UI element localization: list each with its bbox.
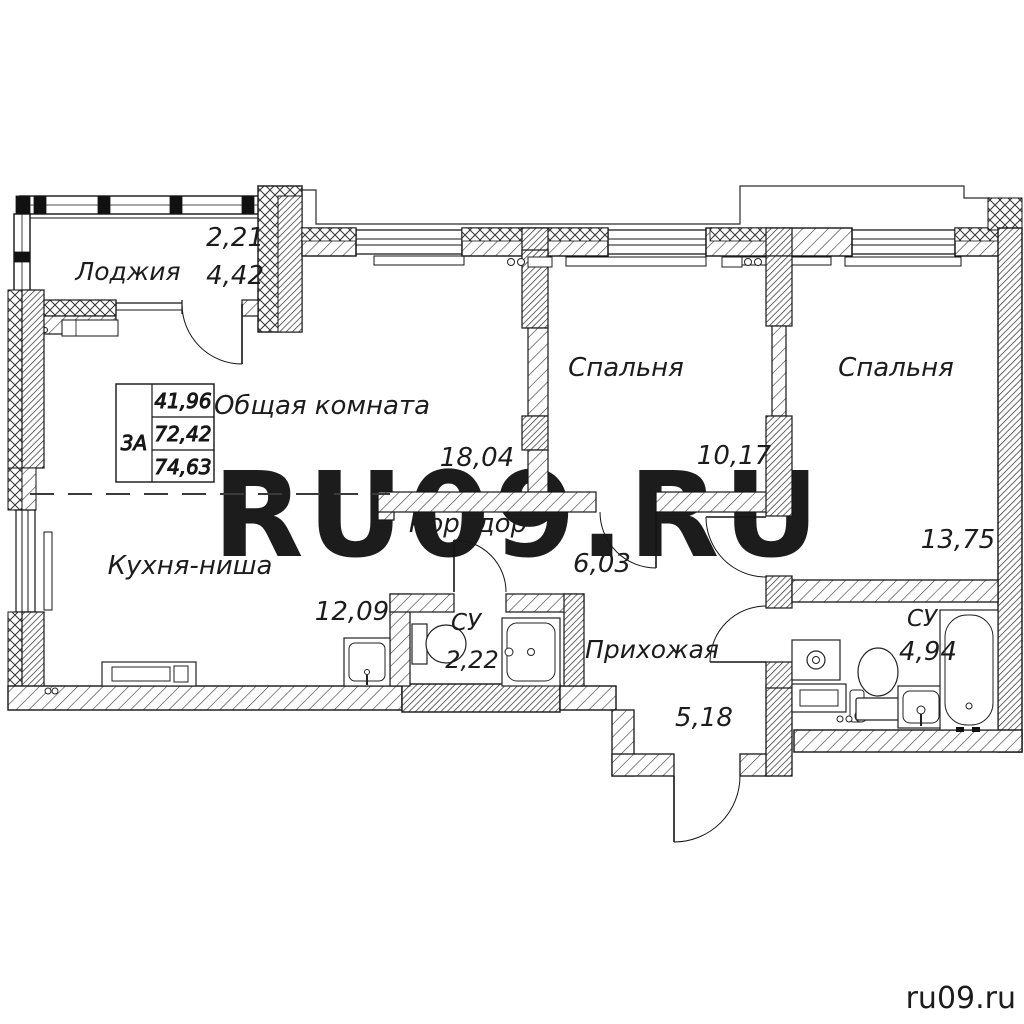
wall-bedroom2-west bbox=[766, 256, 792, 326]
room-area-bedroom2: 13,75 bbox=[921, 525, 995, 555]
wall-bath-small bbox=[390, 594, 454, 612]
kitchen-counter bbox=[174, 666, 188, 682]
glazing-post bbox=[98, 196, 110, 214]
radiator bbox=[44, 532, 52, 610]
unit-label: 3А bbox=[121, 431, 147, 455]
outlet-icon bbox=[745, 259, 752, 266]
room-label-corridor: Коридор bbox=[409, 509, 527, 539]
bathtub-foot bbox=[972, 727, 980, 732]
wall-left bbox=[8, 290, 22, 468]
wall-bottom bbox=[402, 684, 560, 712]
room-area-corridor: 6,03 bbox=[573, 549, 631, 579]
outlet-icon bbox=[52, 688, 58, 694]
window-sill bbox=[566, 257, 706, 266]
room-label-living: Общая комната bbox=[214, 391, 430, 421]
wall-bath-small bbox=[564, 594, 584, 686]
loggia-cabinet bbox=[62, 320, 118, 336]
room-area-loggia-half: 2,21 bbox=[206, 223, 264, 253]
outlet-icon bbox=[755, 259, 762, 266]
kitchen-counter bbox=[112, 667, 170, 681]
wall-living-bedroom1 bbox=[528, 450, 548, 492]
table-value: 74,63 bbox=[154, 455, 211, 479]
room-label-bath-small: СУ bbox=[451, 610, 483, 636]
wall-right bbox=[998, 228, 1022, 752]
window-sill bbox=[845, 257, 961, 266]
floor-plan: RU09.RU bbox=[0, 0, 1024, 1024]
room-area-bath-big: 4,94 bbox=[899, 637, 957, 667]
wall-bedroom2-west bbox=[766, 662, 792, 688]
toilet-tank bbox=[856, 698, 900, 720]
vent-box bbox=[722, 257, 742, 267]
wall-bedroom2-west bbox=[766, 576, 792, 608]
wall-loggia-right-core bbox=[278, 196, 302, 332]
toilet-bowl bbox=[858, 648, 898, 696]
outlet-icon bbox=[518, 259, 525, 266]
wall-living-bedroom1 bbox=[522, 416, 548, 450]
bath-accessory bbox=[837, 716, 843, 722]
window-sill bbox=[374, 256, 464, 265]
outlet-icon bbox=[45, 688, 51, 694]
room-label-bedroom2: Спальня bbox=[838, 353, 954, 383]
table-value: 41,96 bbox=[154, 389, 211, 413]
faucet-icon bbox=[365, 670, 370, 675]
bathtub-drain bbox=[966, 703, 972, 709]
room-area-kitchen: 12,09 bbox=[315, 597, 389, 627]
watermark-corner: ru09.ru bbox=[906, 981, 1016, 1016]
room-area-bedroom1: 10,17 bbox=[697, 441, 772, 471]
bathtub-foot bbox=[956, 727, 964, 732]
wall-bath-bottom bbox=[794, 730, 1022, 752]
floor-plan-page: RU09.RU bbox=[0, 0, 1024, 1024]
vent-box bbox=[528, 257, 552, 267]
outlet-icon bbox=[508, 259, 515, 266]
wall-vestibule bbox=[612, 754, 674, 776]
table-value: 72,42 bbox=[154, 422, 211, 446]
wall-bottom bbox=[560, 686, 616, 710]
faucet-icon bbox=[917, 706, 925, 714]
wall-bedroom2-bath bbox=[792, 580, 998, 602]
room-label-hall: Прихожая bbox=[585, 635, 719, 664]
toilet-tank bbox=[412, 624, 427, 664]
bath-accessory bbox=[846, 716, 852, 722]
wall-living-bedroom1 bbox=[528, 328, 548, 416]
wall-corridor bbox=[656, 492, 768, 512]
wall-left bbox=[22, 290, 44, 468]
room-area-bath-small: 2,22 bbox=[445, 646, 498, 674]
room-area-hall: 5,18 bbox=[675, 703, 733, 733]
room-area-living: 18,04 bbox=[440, 443, 514, 473]
glazing-post bbox=[170, 196, 182, 214]
glazing-post bbox=[242, 196, 254, 214]
washing-machine-drum bbox=[813, 657, 820, 664]
glazing-post bbox=[16, 196, 30, 214]
shower-drain bbox=[528, 649, 535, 656]
glazing-post bbox=[34, 196, 46, 214]
glazing-post bbox=[14, 252, 30, 262]
room-label-bath-big: СУ bbox=[907, 606, 939, 632]
room-label-kitchen: Кухня-ниша bbox=[108, 551, 273, 581]
bath-cabinet bbox=[800, 690, 838, 706]
info-table: 3А 41,96 72,42 74,63 bbox=[116, 384, 214, 482]
room-label-loggia: Лоджия bbox=[74, 257, 180, 286]
faucet-icon bbox=[505, 648, 513, 656]
room-area-loggia: 4,42 bbox=[206, 261, 264, 291]
room-label-bedroom1: Спальня bbox=[568, 353, 684, 383]
wall-vestibule bbox=[766, 686, 792, 776]
wall-bottom bbox=[8, 686, 402, 710]
wall-bedroom2-west bbox=[772, 326, 786, 416]
